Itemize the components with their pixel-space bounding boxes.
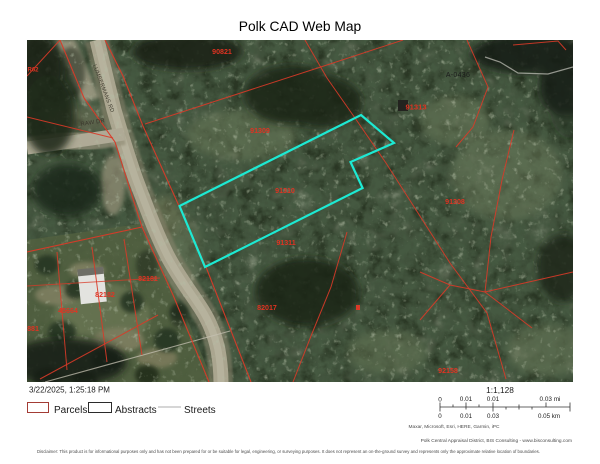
svg-text:92158: 92158 xyxy=(438,367,458,375)
svg-text:Disclaimer: This product is fo: Disclaimer: This product is for informat… xyxy=(37,449,540,454)
svg-text:881: 881 xyxy=(27,325,39,333)
svg-text:Polk CAD Web Map: Polk CAD Web Map xyxy=(239,19,362,34)
svg-text:91313: 91313 xyxy=(405,103,426,112)
svg-text:91308: 91308 xyxy=(445,198,465,206)
svg-text:Streets: Streets xyxy=(184,405,216,416)
svg-text:Abstracts: Abstracts xyxy=(115,405,157,416)
svg-text:0: 0 xyxy=(438,397,442,404)
svg-text:0.03 mi: 0.03 mi xyxy=(540,396,561,403)
svg-text:91310: 91310 xyxy=(275,187,295,195)
svg-text:Maxar, Microsoft, Esri, HERE,: Maxar, Microsoft, Esri, HERE, Garmin, iP… xyxy=(409,424,500,430)
svg-text:82182: 82182 xyxy=(95,291,115,299)
svg-text:45664: 45664 xyxy=(58,307,78,315)
svg-text:Polk Central Appraisal Distric: Polk Central Appraisal District, BIS Con… xyxy=(421,438,572,444)
svg-text:82017: 82017 xyxy=(257,304,277,312)
svg-text:0.03: 0.03 xyxy=(487,413,500,420)
svg-text:91309: 91309 xyxy=(250,127,270,135)
svg-text:91311: 91311 xyxy=(276,239,295,247)
svg-text:0: 0 xyxy=(438,413,442,420)
svg-text:82181: 82181 xyxy=(138,275,158,283)
svg-text:0.05 km: 0.05 km xyxy=(538,413,560,420)
svg-text:0.01: 0.01 xyxy=(487,396,500,403)
svg-text:Parcels: Parcels xyxy=(54,405,87,416)
svg-text:R62: R62 xyxy=(27,68,39,74)
svg-text:A-0436: A-0436 xyxy=(446,72,470,79)
svg-text:90821: 90821 xyxy=(212,48,232,56)
svg-text:3/22/2025, 1:25:18 PM: 3/22/2025, 1:25:18 PM xyxy=(29,386,110,395)
svg-text:0.01: 0.01 xyxy=(460,413,473,420)
svg-text:0.01: 0.01 xyxy=(460,396,473,403)
svg-text:1:1,128: 1:1,128 xyxy=(486,385,514,395)
